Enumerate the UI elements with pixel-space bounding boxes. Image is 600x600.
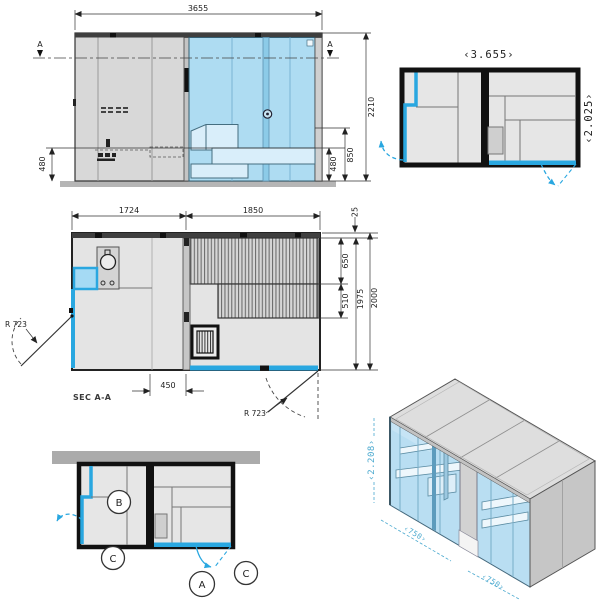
door-offset-dim: 450 xyxy=(132,374,204,396)
radius-label-right: R 723 xyxy=(244,409,266,418)
section-marker-left: A xyxy=(37,40,43,49)
dim-right-module: 1850 xyxy=(243,206,263,215)
section-arrow-left xyxy=(37,50,43,57)
dim-left-module: 1724 xyxy=(119,206,139,215)
callout-b-label: B xyxy=(116,498,123,509)
callout-b: B xyxy=(108,491,131,514)
callout-a: A xyxy=(190,572,215,597)
callout-a-label: A xyxy=(199,580,206,591)
section-top-dimensions: 1724 1850 xyxy=(72,206,320,230)
end-frame xyxy=(315,38,322,182)
section-right-dimensions: 25 650 510 1975 2000 xyxy=(318,207,379,370)
dim-bench-right-height: 480 xyxy=(329,156,338,171)
dim-bench-back-height: 850 xyxy=(346,147,355,162)
section-marker-right: A xyxy=(327,40,333,49)
callout-c-right-label: C xyxy=(243,569,250,580)
overview-plan: ‹3.655› ‹2.025› xyxy=(381,49,595,186)
section-arrow-right xyxy=(327,50,333,57)
dim-overall-width: 3655 xyxy=(188,4,208,13)
washbasin xyxy=(101,255,116,270)
dim-outer-depth: 2000 xyxy=(370,288,379,308)
partition-post xyxy=(184,38,189,182)
hinge-mark xyxy=(69,308,73,313)
wall-detail-plan: B C A C xyxy=(52,451,260,597)
ground-base xyxy=(60,181,336,187)
dim-iso-front-right: ‹750› xyxy=(480,572,506,592)
dim-overall-height: 2210 xyxy=(367,97,376,117)
heater-grille xyxy=(197,331,213,353)
roof-joint xyxy=(110,33,116,38)
callout-c-left-label: C xyxy=(110,554,117,565)
detail-partition xyxy=(146,464,154,547)
wall-joint xyxy=(95,233,102,238)
technical-drawing-sheet: A A 3655 2210 850 480 480 ‹3.655› xyxy=(0,0,600,600)
sauna-bench-lower xyxy=(218,284,318,318)
section-top-wall xyxy=(72,233,320,238)
sauna-bench-upper xyxy=(190,238,318,284)
roof-joint xyxy=(255,33,261,38)
section-plan: 1724 1850 xyxy=(5,206,379,419)
partition-block xyxy=(184,238,189,246)
dim-door-offset: 450 xyxy=(160,381,175,390)
shower-tray xyxy=(74,268,97,289)
front-door: R 723 xyxy=(244,371,318,419)
door-fitting xyxy=(307,40,313,46)
door-leaf-dashed xyxy=(214,546,231,568)
section-title: SEC A-A xyxy=(73,393,112,402)
hinge-mark xyxy=(73,99,76,106)
isometric-view: ‹2.208› ‹750› ‹750› xyxy=(367,379,595,599)
callout-c-left: C xyxy=(102,547,125,570)
radius-label-left: R 723 xyxy=(5,320,27,329)
dim-plan-width: ‹3.655› xyxy=(463,49,514,61)
section-partition xyxy=(183,238,190,370)
dim-inner-depth: 1975 xyxy=(356,289,365,309)
callout-c-right: C xyxy=(235,562,258,585)
door-handle-dot xyxy=(266,113,269,116)
wall-joint xyxy=(160,233,166,238)
front-elevation: A A 3655 2210 850 480 480 xyxy=(33,4,376,187)
dim-bench-left-height: 480 xyxy=(38,156,47,171)
lock-strip xyxy=(185,68,189,92)
glass-wall-front xyxy=(154,543,231,548)
glass-wall-front xyxy=(489,161,576,166)
door-leaf xyxy=(21,316,72,366)
partition-block xyxy=(184,312,189,322)
left-door: R 723 xyxy=(5,314,74,366)
door-stop xyxy=(260,366,269,371)
glass-wall-front xyxy=(190,366,318,371)
dim-wall-thickness: 25 xyxy=(351,207,360,217)
dim-bench-low: 510 xyxy=(341,293,350,308)
wall-joint xyxy=(240,233,247,238)
glass-wall-left xyxy=(71,289,75,368)
dim-bench-deep: 650 xyxy=(341,253,350,268)
iso-door-frame xyxy=(432,441,436,531)
dim-plan-depth: ‹2.025› xyxy=(583,92,595,143)
wall-joint xyxy=(295,233,301,238)
dim-iso-front-left: ‹750› xyxy=(402,524,428,544)
dim-iso-height: ‹2.208› xyxy=(367,439,377,480)
